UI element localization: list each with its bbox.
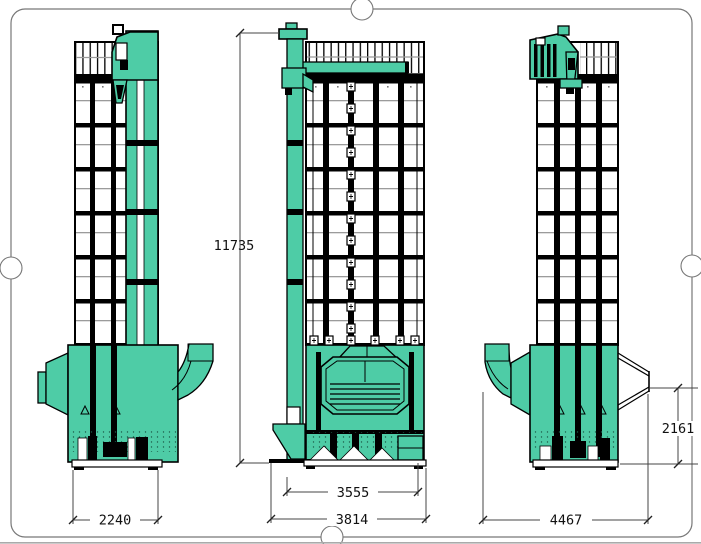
cad-drawing: 2240: [0, 0, 701, 544]
dimension-front-inner-width: 3555: [283, 463, 422, 501]
boot-motor: [287, 407, 300, 424]
front-tower-grid: [306, 42, 424, 345]
registration-mark-top: [351, 0, 373, 20]
base-plate: [304, 460, 426, 466]
left-side-view: 2240: [38, 25, 213, 529]
right-pointed-duct: [618, 353, 649, 410]
left-air-duct: [46, 353, 68, 415]
dimension-total-height: 11735: [214, 29, 279, 467]
left-base-section: [38, 344, 213, 470]
front-view: 11735 3555 3814: [214, 23, 430, 528]
elevator-top-cap: [279, 29, 307, 39]
exhaust-elbow-duct: [178, 344, 213, 400]
right-side-view: 2161 4467: [479, 26, 701, 529]
base-plate: [533, 460, 618, 467]
drawing-sheet: 2240: [0, 0, 701, 544]
dimension-right-overall-width-label: 4467: [550, 513, 583, 529]
registration-mark-right: [681, 255, 701, 277]
dimension-total-height-label: 11735: [214, 238, 255, 254]
base-plate: [72, 460, 162, 467]
elevator-head-cap: [113, 25, 123, 34]
dimension-left-width-label: 2240: [99, 513, 132, 529]
top-conveyor: [301, 62, 408, 73]
dimension-front-overall-width-label: 3814: [336, 512, 369, 528]
right-base-section: [485, 344, 649, 470]
dimension-front-inner-width-label: 3555: [337, 485, 370, 501]
registration-mark-bottom: [321, 526, 343, 544]
head-cap: [558, 26, 569, 35]
registration-mark-left: [0, 257, 22, 279]
exhaust-elbow-duct-right-view: [485, 344, 511, 398]
dimension-right-base-height-label: 2161: [662, 421, 695, 437]
duct-transition: [511, 352, 530, 415]
elevator-boot-hopper: [273, 424, 305, 459]
dimension-left-width: 2240: [69, 470, 162, 529]
